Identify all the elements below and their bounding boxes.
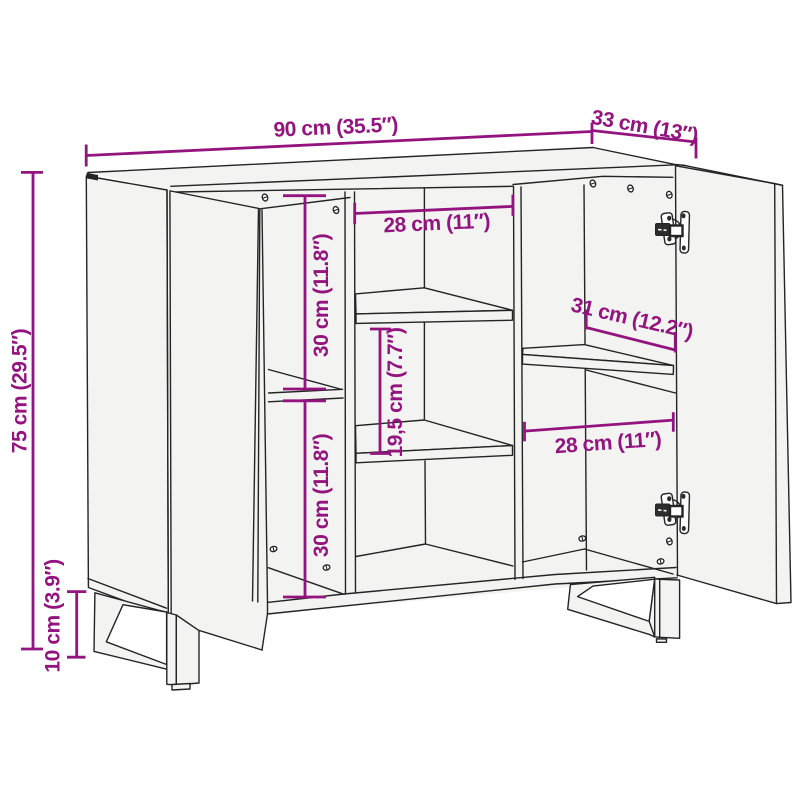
svg-text:30 cm (11.8″): 30 cm (11.8″) [310, 434, 333, 557]
svg-text:28 cm (11″): 28 cm (11″) [383, 210, 491, 238]
svg-text:30 cm (11.8″): 30 cm (11.8″) [310, 234, 333, 357]
svg-text:19,5 cm (7.7″): 19,5 cm (7.7″) [384, 328, 407, 458]
svg-text:75 cm (29.5″): 75 cm (29.5″) [9, 329, 32, 453]
svg-text:10 cm (3.9″): 10 cm (3.9″) [42, 559, 65, 672]
